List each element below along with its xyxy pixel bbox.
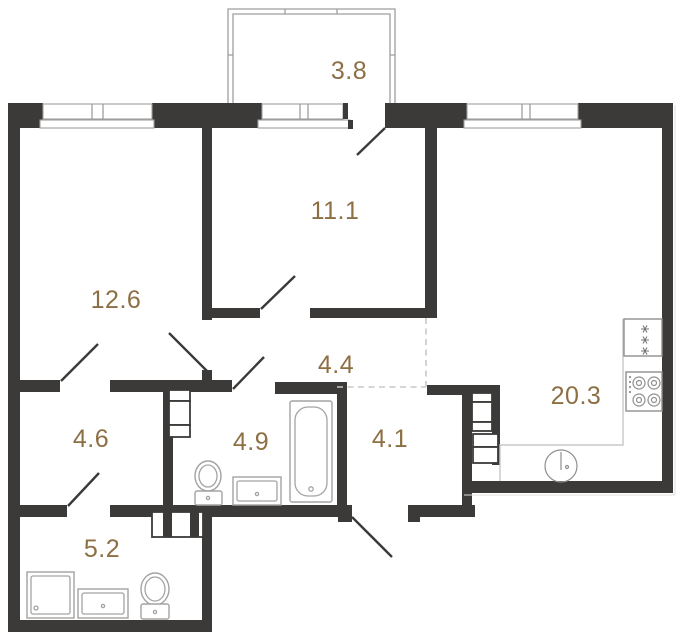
area-label-bathroom: 4.9 xyxy=(233,428,269,456)
area-label-living-room: 12.6 xyxy=(91,286,142,314)
sink-drain xyxy=(566,466,569,469)
shower-room-fixtures xyxy=(27,572,169,619)
window-sill xyxy=(464,120,581,128)
vent-shaft-icon xyxy=(473,447,498,463)
wall-divider-11-20 xyxy=(425,127,437,318)
window-sill xyxy=(258,120,350,128)
wall-entry-jamb-right-tab xyxy=(408,505,420,522)
toilet-tank xyxy=(195,491,222,505)
vent-shaft-icon xyxy=(472,402,492,422)
window-sill xyxy=(40,120,154,128)
wall-dressing-bottom xyxy=(8,505,67,517)
wall-kitchen-bottom xyxy=(462,481,673,493)
wall-bathroom-right xyxy=(337,382,347,517)
kitchen-sink-icon xyxy=(545,450,577,482)
wall-hall-right xyxy=(462,393,472,517)
vent-shaft-icon xyxy=(472,422,492,431)
wall-bathroom-top xyxy=(275,382,337,394)
entrance-door-leaf xyxy=(352,517,392,557)
area-label-balcony: 3.8 xyxy=(331,57,367,85)
balcony-door-leaf xyxy=(357,128,385,155)
area-label-kitchen-living: 20.3 xyxy=(551,382,602,410)
vent-shaft-icon xyxy=(472,393,492,402)
dressing-door-leaf xyxy=(61,344,98,381)
stove-knob xyxy=(629,381,631,383)
balcony-door-jamb xyxy=(343,103,348,119)
wall-outer-left xyxy=(8,103,20,632)
wall-entry-jamb-left xyxy=(338,505,352,522)
stove-knob xyxy=(629,386,631,388)
stove-knob xyxy=(629,376,631,378)
stove-icon xyxy=(626,372,662,411)
bedroom-door-leaf xyxy=(261,276,295,309)
bathroom-door-leaf xyxy=(233,357,264,389)
vent-shaft-icon xyxy=(169,390,190,401)
bathtub-icon xyxy=(290,401,332,502)
balcony-door-jamb-lower xyxy=(348,120,353,129)
fridge-icon xyxy=(624,319,662,356)
shower-outer xyxy=(27,572,74,618)
wall-top-1 xyxy=(8,103,43,128)
window-living-room xyxy=(43,104,152,119)
area-label-bedroom: 11.1 xyxy=(311,197,360,225)
vent-shaft-divider xyxy=(163,512,172,537)
wall-top-2 xyxy=(152,103,262,128)
wall-top-4 xyxy=(578,103,673,128)
area-label-hallway: 4.4 xyxy=(318,351,354,379)
toilet-icon xyxy=(141,573,169,619)
shower-tray-icon xyxy=(27,572,74,618)
vanity-sink-icon xyxy=(78,589,128,618)
vent-shaft-icon xyxy=(473,434,498,447)
area-label-dressing-room: 4.6 xyxy=(73,425,109,453)
stove-knob xyxy=(629,391,631,393)
wall-outer-bottom-left xyxy=(8,620,212,632)
wall-top-3 xyxy=(385,103,467,128)
area-label-shower-room: 5.2 xyxy=(84,535,120,563)
wall-bedroom-bottom-right xyxy=(310,308,437,318)
wall-bedroom-bottom-left xyxy=(202,308,260,318)
area-label-entrance-hall: 4.1 xyxy=(372,425,408,453)
toilet-tank xyxy=(141,604,169,619)
vent-shaft-icon xyxy=(169,425,190,437)
wall-divider-12-11 xyxy=(202,127,212,320)
wall-outer-right xyxy=(662,103,673,493)
floor-plan: 3.8 11.1 12.6 4.4 4.6 4.9 4.1 20.3 5.2 xyxy=(0,0,680,640)
toilet-icon xyxy=(195,461,222,505)
window-bedroom xyxy=(262,104,343,119)
balcony-outer-line xyxy=(228,9,395,103)
balcony-glazing xyxy=(228,9,395,103)
vanity-sink-icon xyxy=(233,477,281,505)
living-room-door-leaf xyxy=(169,333,207,371)
vent-shaft-icon xyxy=(169,401,190,425)
wall-bathroom-bottom xyxy=(110,505,352,517)
floor-plan-canvas: 3.8 11.1 12.6 4.4 4.6 4.9 4.1 20.3 5.2 xyxy=(0,0,680,640)
vent-shaft-divider xyxy=(190,512,199,537)
wall-stub-living-door xyxy=(202,370,212,392)
wall-dressing-top-a xyxy=(8,380,60,392)
windows-layer xyxy=(40,103,581,129)
shower-room-door-leaf xyxy=(68,473,99,506)
